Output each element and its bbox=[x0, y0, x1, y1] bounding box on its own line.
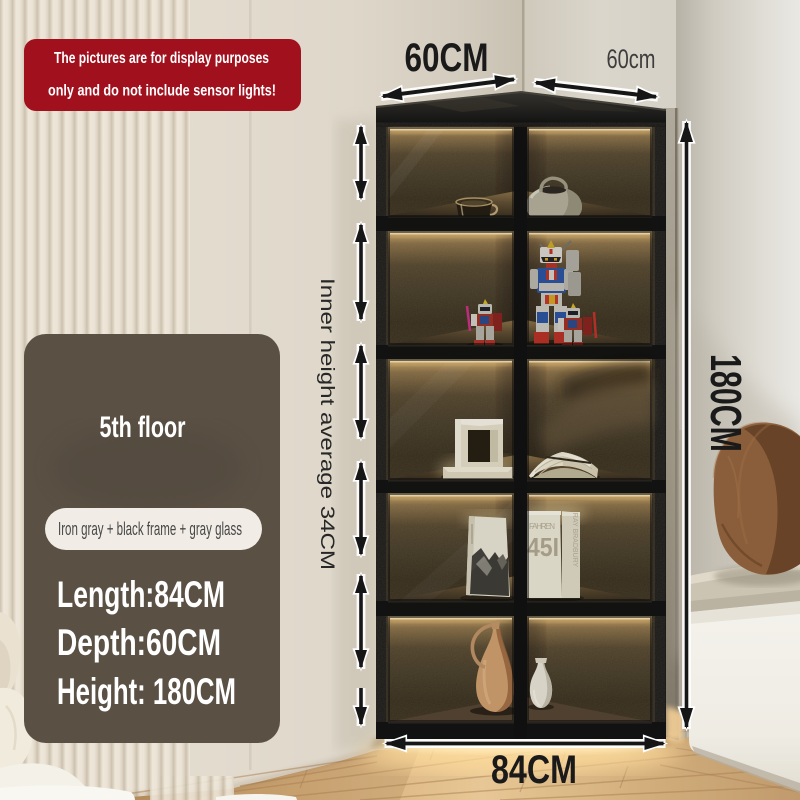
svg-text:84CM: 84CM bbox=[491, 748, 577, 792]
svg-text:Depth:60CM: Depth:60CM bbox=[57, 622, 221, 663]
svg-text:only and do not include sensor: only and do not include sensor lights! bbox=[48, 83, 276, 100]
svg-text:5th floor: 5th floor bbox=[100, 411, 186, 444]
svg-text:Iron gray + black frame + gray: Iron gray + black frame + gray glass bbox=[58, 519, 242, 539]
svg-text:60CM: 60CM bbox=[405, 36, 489, 80]
svg-text:Inner height average 34CM: Inner height average 34CM bbox=[316, 278, 337, 570]
svg-text:The pictures are for display p: The pictures are for display purposes bbox=[54, 50, 269, 67]
svg-text:180CM: 180CM bbox=[701, 354, 750, 452]
svg-text:60cm: 60cm bbox=[607, 44, 656, 74]
svg-text:Length:84CM: Length:84CM bbox=[57, 574, 225, 615]
svg-text:Height: 180CM: Height: 180CM bbox=[57, 671, 236, 712]
